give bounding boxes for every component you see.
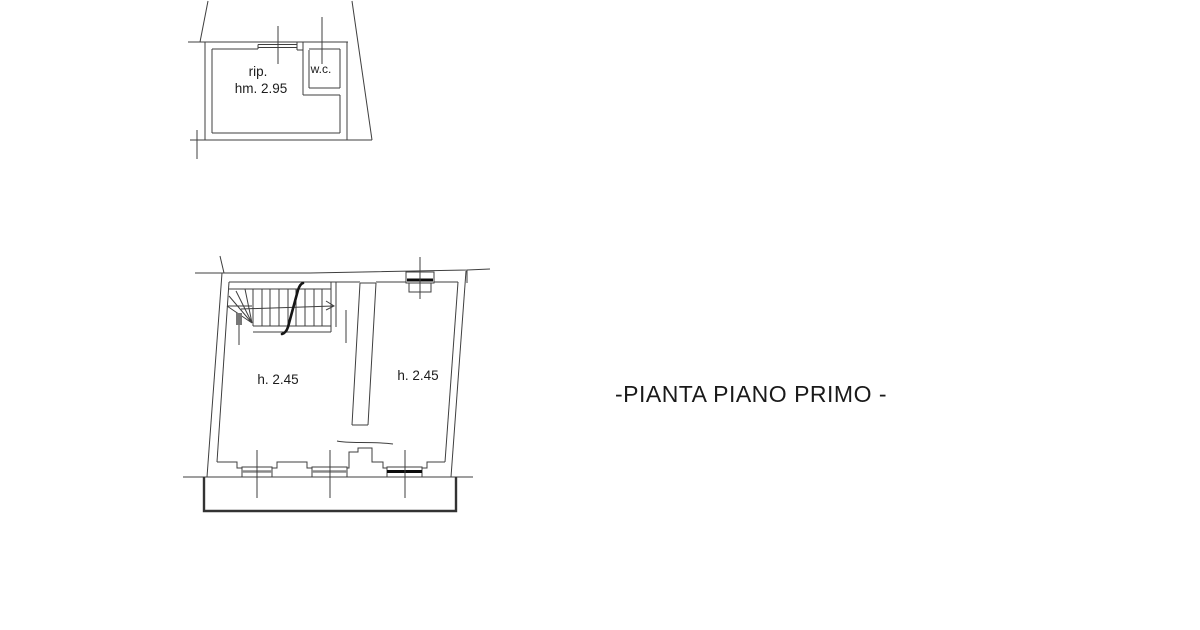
lower-wall-bottom-inner xyxy=(217,448,445,468)
upper-wall-top-inner-left xyxy=(212,45,258,50)
upper-plan-ticks xyxy=(278,17,322,64)
staircase xyxy=(227,282,346,345)
stair-direction-arrow-head xyxy=(326,301,334,310)
lower-wall-right-outer xyxy=(451,271,466,477)
boundary-line-right xyxy=(352,1,372,140)
lower-wall-left-inner xyxy=(217,282,229,462)
stair-newel-post xyxy=(236,313,242,325)
plan-title: -PIANTA PIANO PRIMO - xyxy=(615,381,887,407)
stair-direction-arrow-shaft xyxy=(241,306,333,309)
lower-wall-left-outer xyxy=(207,273,222,477)
floor-plan-drawing: rip. hm. 2.95 w.c. xyxy=(0,0,1200,630)
floor-plan-sheet: rip. hm. 2.95 w.c. xyxy=(0,0,1200,630)
threshold-line xyxy=(337,441,393,444)
upper-plan-boundary-lines xyxy=(188,1,372,159)
upper-plan: rip. hm. 2.95 w.c. xyxy=(188,1,372,159)
lower-wall-right-inner xyxy=(445,282,458,462)
window-top-right xyxy=(406,257,434,299)
boundary-line-left xyxy=(200,1,208,42)
central-wall-lines xyxy=(352,283,376,425)
right-room-height-label: h. 2.45 xyxy=(397,368,438,383)
left-room-height-label: h. 2.45 xyxy=(257,372,298,387)
wc-label: w.c. xyxy=(310,62,332,76)
upper-room-label-line1: rip. xyxy=(249,64,268,79)
windows-bottom xyxy=(242,450,422,498)
upper-wall-pier xyxy=(297,42,303,50)
lower-top-line xyxy=(195,269,490,273)
lower-top-left-stub xyxy=(220,256,224,273)
wc-wall-bottom xyxy=(303,88,340,95)
central-wall xyxy=(352,283,376,425)
upper-room-label-line2: hm. 2.95 xyxy=(235,81,288,96)
lower-plan: h. 2.45 h. 2.45 xyxy=(183,256,490,511)
